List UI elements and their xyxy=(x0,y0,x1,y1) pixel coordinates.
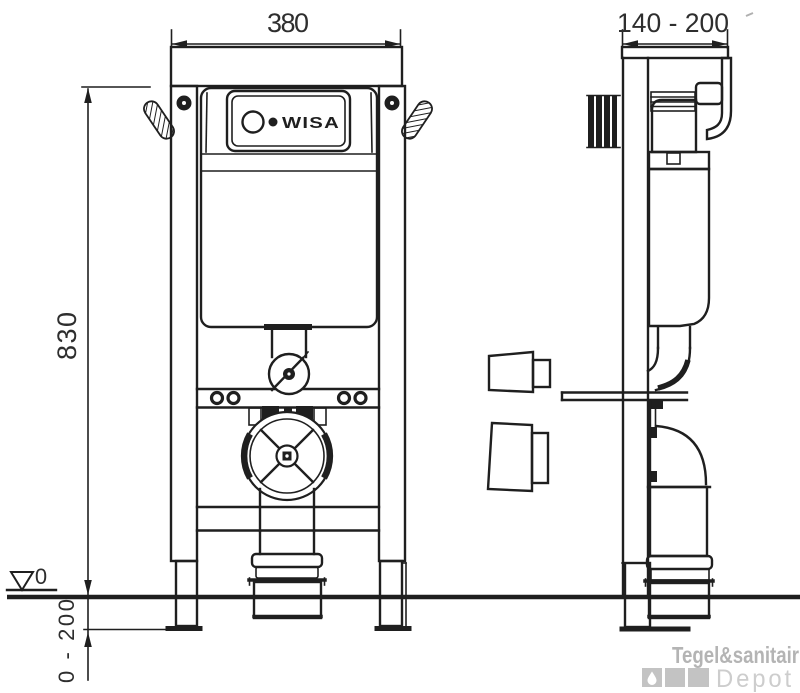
pipe-body xyxy=(254,582,321,618)
service-opening xyxy=(667,153,680,164)
cistern-top-section xyxy=(652,100,696,152)
right-rail xyxy=(379,86,405,561)
anchor-stripe xyxy=(612,96,617,148)
dim-width-label: 380 xyxy=(267,8,309,38)
outlet-elbow-side xyxy=(648,402,710,556)
outlet-sleeve xyxy=(488,423,548,491)
right-foot xyxy=(380,561,402,626)
smudge-artifact xyxy=(746,13,753,16)
dimension-foot-adjust: 0 - 200 xyxy=(54,598,170,683)
rail-bolts xyxy=(177,96,400,111)
anchor-stripe xyxy=(604,96,610,148)
access-panel: WISA xyxy=(227,91,350,151)
dimension-width-380: 380 xyxy=(172,8,401,48)
anchor-stripe xyxy=(596,96,602,148)
dim-depth-label: 140 - 200 xyxy=(617,8,729,38)
left-foot xyxy=(176,561,197,626)
cistern-tank xyxy=(649,169,709,326)
flush-bend-side xyxy=(648,327,690,390)
wc-outlet-flange xyxy=(243,406,331,531)
watermark-suffix-text: Depot xyxy=(716,665,794,693)
dim-height-label: 830 xyxy=(52,312,82,360)
level-triangle-icon xyxy=(11,572,33,590)
anchor-stripe xyxy=(588,96,594,148)
technical-drawing-svg: 380 xyxy=(0,0,800,693)
bolt-icon xyxy=(355,393,366,404)
arrowhead-up-icon xyxy=(84,88,92,103)
level-marker-zero: 0 xyxy=(7,564,56,590)
bolt-icon xyxy=(339,393,350,404)
top-plate-side xyxy=(622,47,728,58)
outlet-pipe-side xyxy=(645,556,713,618)
flush-button-icon xyxy=(243,112,264,133)
wall-hook-bracket xyxy=(707,58,731,139)
fill-valve-details xyxy=(651,83,722,111)
left-rail xyxy=(171,86,197,561)
bolt-icon xyxy=(212,393,223,404)
wall-anchor-block xyxy=(587,96,620,149)
installation-drawing: 380 xyxy=(0,0,800,693)
side-view: 140 - 200 xyxy=(562,8,731,629)
pipe-collar xyxy=(256,567,318,578)
watermark-square xyxy=(688,668,709,687)
floor-level-label: 0 xyxy=(35,564,47,589)
dimension-height-830: 830 xyxy=(52,87,150,595)
bend-shadow-arc xyxy=(658,360,688,388)
pipe-body xyxy=(649,583,709,618)
flush-valve xyxy=(264,324,312,394)
pipe-collar xyxy=(647,556,712,569)
pipe-collar xyxy=(651,569,709,580)
watermark: Tegel&sanitair Depot xyxy=(642,642,799,693)
cistern-side xyxy=(649,100,709,326)
front-view: 380 xyxy=(7,8,435,683)
pan-mounting-shelf xyxy=(562,393,687,410)
frame-top-plate xyxy=(171,47,402,86)
clamp xyxy=(647,471,657,482)
arrowhead-up-icon xyxy=(84,632,92,647)
brand-logo-text: WISA xyxy=(282,115,340,132)
lower-crossbar xyxy=(197,507,379,531)
bolt-icon xyxy=(228,393,239,404)
clamp xyxy=(647,427,657,438)
dim-foot-adjust-label: 0 - 200 xyxy=(54,599,79,683)
connection-sleeves xyxy=(488,352,550,491)
outlet-pipe-upper xyxy=(650,487,707,556)
outlet-pipe-front xyxy=(249,531,325,618)
inlet-elbow xyxy=(696,83,722,104)
pipe-collar xyxy=(252,554,322,567)
dimension-depth-140-200: 140 - 200 xyxy=(617,8,729,48)
logo-mark-icon xyxy=(269,118,278,127)
arrowhead-down-icon xyxy=(84,580,92,595)
watermark-square xyxy=(665,668,685,687)
flush-pipe-sleeve xyxy=(489,352,550,392)
